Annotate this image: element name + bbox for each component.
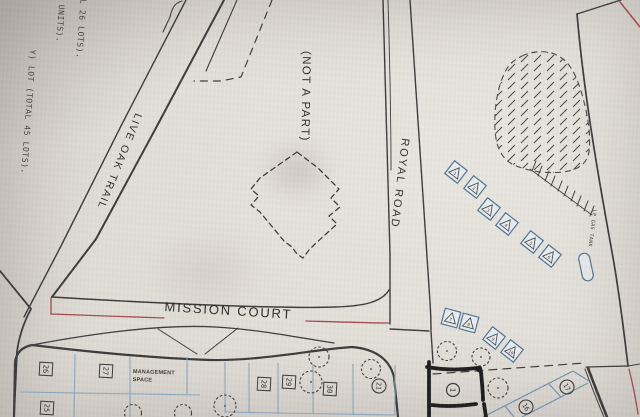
southeast-corner-line bbox=[628, 364, 640, 366]
southeast-road-edge bbox=[588, 368, 607, 417]
junction-bar bbox=[390, 329, 429, 331]
driveway-spur-line bbox=[206, 0, 237, 71]
royal-road-west-inner-line bbox=[388, 0, 391, 170]
east-boundary-line bbox=[577, 14, 628, 366]
hatched-pond-area bbox=[495, 52, 590, 173]
lot-number: 27 bbox=[101, 367, 109, 376]
circled-lot-number: 1 bbox=[448, 388, 456, 393]
west-boundary-line bbox=[0, 271, 31, 417]
site-marker: 3 bbox=[478, 198, 500, 220]
lot-number-squares: 26 27 25 28 29 30 bbox=[39, 362, 337, 415]
site-marker: 4 bbox=[496, 213, 518, 235]
southeast-corner-line bbox=[586, 366, 628, 367]
site-marker: 5 bbox=[521, 231, 543, 253]
lot-number: 30 bbox=[325, 385, 333, 394]
site-marker: 2 bbox=[464, 176, 486, 198]
circled-lot-numbers: 21 1 16 17 bbox=[372, 379, 574, 414]
tick-edge-baseline bbox=[530, 169, 592, 215]
lp-gas-tank-symbol bbox=[578, 252, 595, 282]
southeast-road-edge-inner bbox=[585, 369, 604, 417]
royal-road-east-edge bbox=[410, 0, 431, 330]
site-marker: 6 bbox=[539, 245, 561, 267]
lot-block-boundary bbox=[14, 345, 398, 417]
site-marker: 10 bbox=[501, 340, 523, 362]
not-a-part-label: (NOT A PART) bbox=[298, 51, 312, 142]
building-footprint-dashed bbox=[251, 152, 340, 258]
lot-number: 25 bbox=[42, 404, 50, 413]
site-marker: 9 bbox=[483, 327, 505, 349]
site-marker: 8 bbox=[459, 313, 479, 333]
site-marker: 1 bbox=[445, 161, 467, 183]
plan-linework: 1 2 3 4 5 bbox=[0, 0, 640, 417]
lot-number: 26 bbox=[41, 365, 49, 374]
site-marker: 7 bbox=[441, 308, 461, 328]
site-plan-photo: 1 2 3 4 5 bbox=[0, 0, 640, 417]
management-space-label: MANAGEMENT SPACE bbox=[132, 369, 182, 386]
not-a-part-boundary-dashed bbox=[194, 0, 272, 81]
mission-court-south-edge bbox=[32, 326, 334, 345]
royal-road-east-stub bbox=[431, 331, 433, 363]
circled-lot-number: 17 bbox=[561, 382, 572, 393]
entrance-line bbox=[205, 328, 238, 354]
lot-number: 28 bbox=[259, 380, 267, 389]
circled-lot-number: 16 bbox=[520, 402, 531, 413]
lot-grid-blue bbox=[20, 354, 395, 417]
lot-number: 29 bbox=[284, 378, 292, 387]
northeast-corner-line bbox=[577, 0, 621, 14]
entrance-line bbox=[158, 329, 197, 354]
rv-site-markers: 1 2 3 4 5 bbox=[441, 161, 594, 362]
circled-lot-number: 21 bbox=[374, 382, 382, 390]
live-oak-trail-west-edge bbox=[24, 0, 186, 317]
